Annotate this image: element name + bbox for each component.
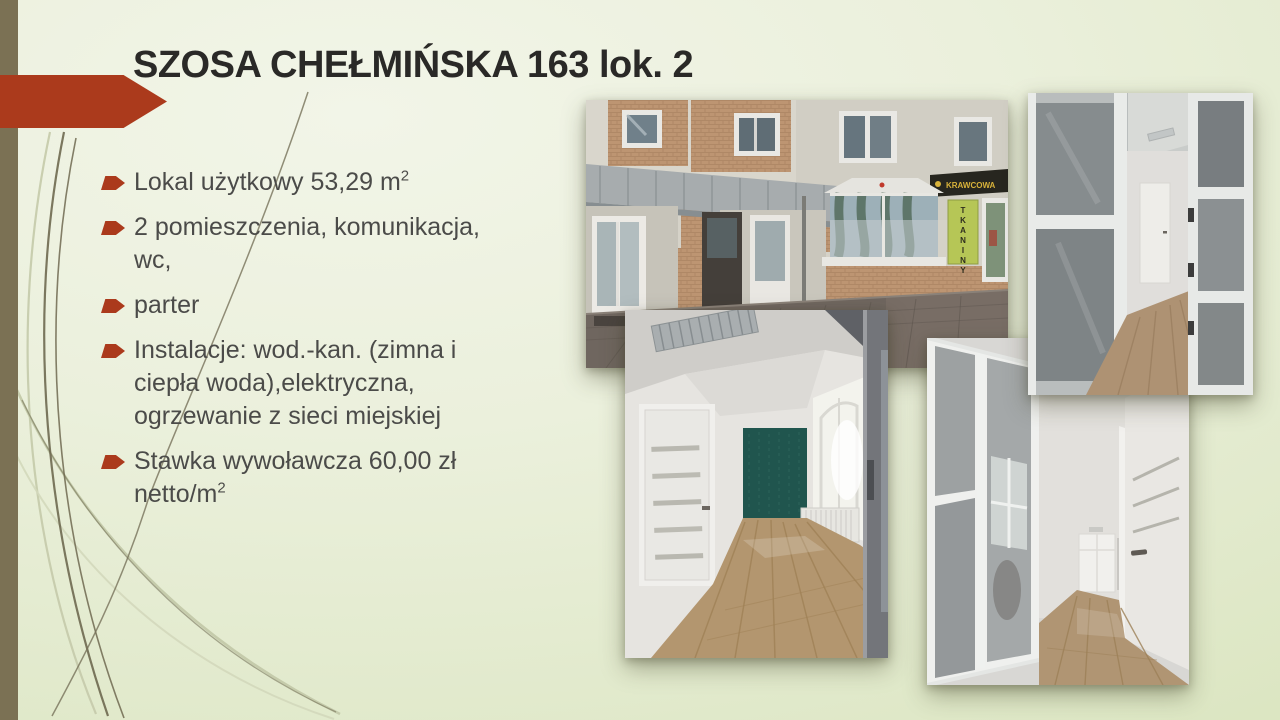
arrow-bullet-icon [101, 299, 125, 313]
bullet-text: parter [134, 291, 199, 319]
page-title: SZOSA CHEŁMIŃSKA 163 lok. 2 [133, 44, 893, 87]
superscript: 2 [217, 480, 225, 497]
list-item: 2 pomieszczenia, komunikacja, wc, [101, 211, 496, 277]
bullet-text: Stawka wywoławcza 60,00 zł netto/m [134, 447, 456, 508]
arrow-bullet-icon [101, 455, 125, 469]
list-item: Lokal użytkowy 53,29 m2 [101, 166, 496, 199]
bullet-text: 2 pomieszczenia, komunikacja, wc, [134, 213, 480, 274]
list-item: Instalacje: wod.-kan. (zimna i ciepła wo… [101, 334, 496, 433]
arrow-bullet-icon [101, 344, 125, 358]
arrow-bullet-icon [101, 176, 125, 190]
bullet-text: Lokal użytkowy 53,29 m [134, 168, 401, 196]
tkaniny-sign-text: TKANINY [959, 206, 968, 276]
photo-corridor-interior [625, 310, 888, 658]
superscript: 2 [401, 168, 409, 185]
list-item: Stawka wywoławcza 60,00 zł netto/m2 [101, 445, 496, 511]
photo-glass-partition-interior [1028, 93, 1253, 395]
bullet-text: Instalacje: wod.-kan. (zimna i ciepła wo… [134, 336, 456, 430]
arrow-bullet-icon [101, 221, 125, 235]
list-item: parter [101, 289, 496, 322]
shop-sign-text: KRAWCOWA [946, 181, 996, 190]
bullet-list: Lokal użytkowy 53,29 m2 2 pomieszczenia,… [101, 166, 496, 523]
presentation-slide: SZOSA CHEŁMIŃSKA 163 lok. 2 Lokal użytko… [0, 0, 1280, 720]
